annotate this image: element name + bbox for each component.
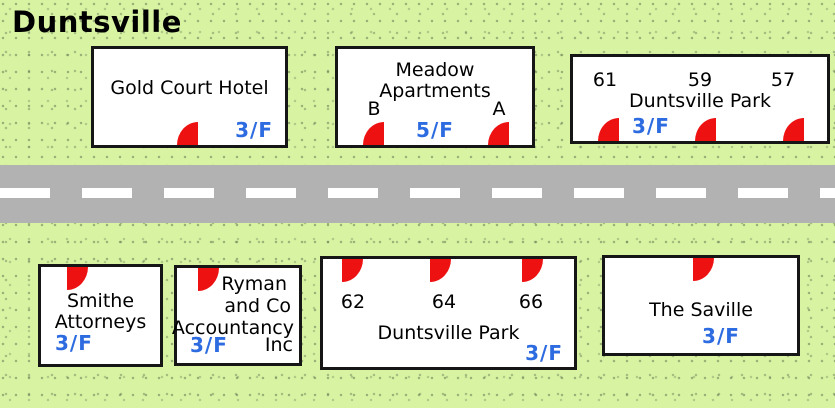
building-name: SmitheAttorneys: [41, 291, 160, 333]
building-name: Gold Court Hotel: [94, 78, 285, 99]
door-icon: [693, 258, 714, 281]
duntsville-street-map: Duntsville Gold Court Hotel 3/F Meadow A…: [0, 0, 835, 408]
building-name-line: Smithe: [67, 290, 134, 312]
floor-label: 3/F: [699, 324, 743, 348]
building-name-suffix: Inc: [265, 334, 293, 356]
unit-label: 66: [509, 291, 553, 313]
building-name-line: and Co: [224, 295, 291, 317]
floor-label: 5/F: [338, 118, 532, 142]
floor-label: 3/F: [235, 118, 273, 142]
unit-label: A: [477, 98, 521, 120]
floor-label: 3/F: [525, 341, 563, 365]
building-smithe-attorneys: SmitheAttorneys 3/F: [38, 264, 163, 367]
building-gold-court-hotel: Gold Court Hotel 3/F: [91, 46, 288, 148]
floor-label: 3/F: [190, 333, 228, 357]
floor-label: 3/F: [55, 331, 93, 355]
building-name: The Saville: [605, 300, 797, 321]
door-icon: [342, 259, 363, 282]
map-title: Duntsville: [12, 5, 182, 39]
floor-label: 3/F: [632, 114, 670, 138]
building-name-line: Ryman: [221, 273, 287, 295]
road-center-line: [0, 188, 835, 198]
building-the-saville: The Saville 3/F: [602, 255, 800, 356]
door-icon: [598, 118, 619, 141]
unit-label: 64: [422, 291, 466, 313]
building-name-line: Attorneys: [55, 311, 147, 333]
road: [0, 165, 835, 223]
building-name: Duntsville Park: [573, 91, 827, 112]
door-icon: [430, 259, 451, 282]
door-icon: [177, 122, 198, 145]
building-meadow-apartments: Meadow Apartments B A 5/F: [335, 46, 535, 148]
building-name: Meadow Apartments: [338, 60, 532, 102]
door-icon: [522, 259, 543, 282]
building-duntsville-park-south: 62 64 66 Duntsville Park 3/F: [320, 256, 577, 370]
unit-label: 62: [331, 291, 375, 313]
unit-label: 61: [583, 69, 627, 91]
unit-label: 57: [761, 69, 805, 91]
building-duntsville-park-north: 61 59 57 Duntsville Park 3/F: [570, 54, 830, 144]
unit-label: B: [352, 98, 396, 120]
door-icon: [198, 268, 219, 291]
door-icon: [67, 267, 88, 290]
building-ryman-and-co-accountancy: Ryman and Co Accountancy 3/F Inc: [174, 265, 302, 366]
unit-label: 59: [678, 69, 722, 91]
door-icon: [783, 118, 804, 141]
door-icon: [695, 118, 716, 141]
